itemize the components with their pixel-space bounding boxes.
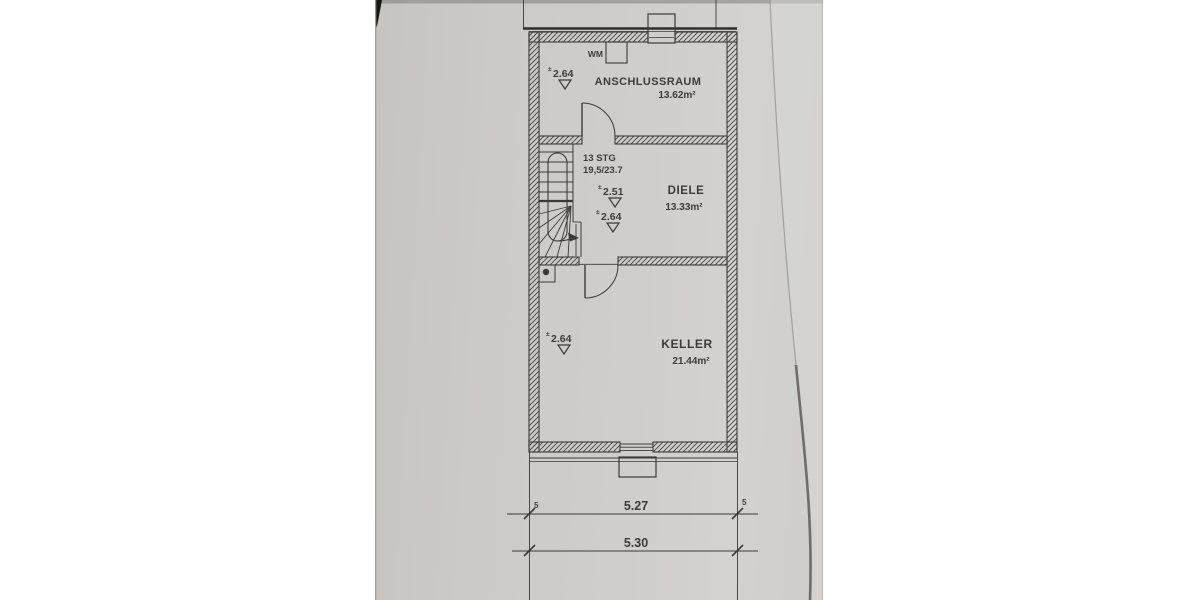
wall-diele-keller-left xyxy=(539,257,579,265)
floor-plan-photo: WM ANSCHLUSSRAUM 13.62m² DIELE 13.33m² K… xyxy=(0,0,1200,600)
room-area-keller: 21.44m² xyxy=(672,356,710,367)
wall-anschlussraum-diele-right xyxy=(615,136,727,144)
wall-offset-left: 5 xyxy=(534,501,539,510)
wall-bottom-right-segment xyxy=(653,442,737,452)
wall-top-left-segment xyxy=(529,32,648,42)
scanned-floor-plan-page: WM ANSCHLUSSRAUM 13.62m² DIELE 13.33m² K… xyxy=(0,0,1200,600)
stair-note-line2: 19,5/23.7 xyxy=(583,165,623,176)
drain-icon xyxy=(543,269,549,275)
dimension-value-outer: 5.30 xyxy=(624,536,648,550)
room-label-keller: KELLER xyxy=(661,337,713,351)
stair-note-line1: 13 STG xyxy=(583,153,616,164)
wall-right xyxy=(727,32,737,452)
wall-anschlussraum-diele-left xyxy=(539,136,582,144)
wall-bottom-left-segment xyxy=(529,442,620,452)
dimension-value-inner: 5.27 xyxy=(624,499,648,513)
wall-diele-keller-right xyxy=(618,257,727,265)
room-label-anschlussraum: ANSCHLUSSRAUM xyxy=(595,76,702,88)
paper-top-shadow xyxy=(375,0,823,4)
room-area-anschlussraum: 13.62m² xyxy=(658,90,696,101)
wall-offset-right: 5 xyxy=(742,498,747,507)
room-area-diele: 13.33m² xyxy=(665,202,703,213)
washing-machine-label: WM xyxy=(588,49,603,59)
paper xyxy=(375,0,823,600)
wall-left xyxy=(529,32,539,452)
paper-sheet xyxy=(376,0,823,600)
room-label-diele: DIELE xyxy=(668,185,705,197)
